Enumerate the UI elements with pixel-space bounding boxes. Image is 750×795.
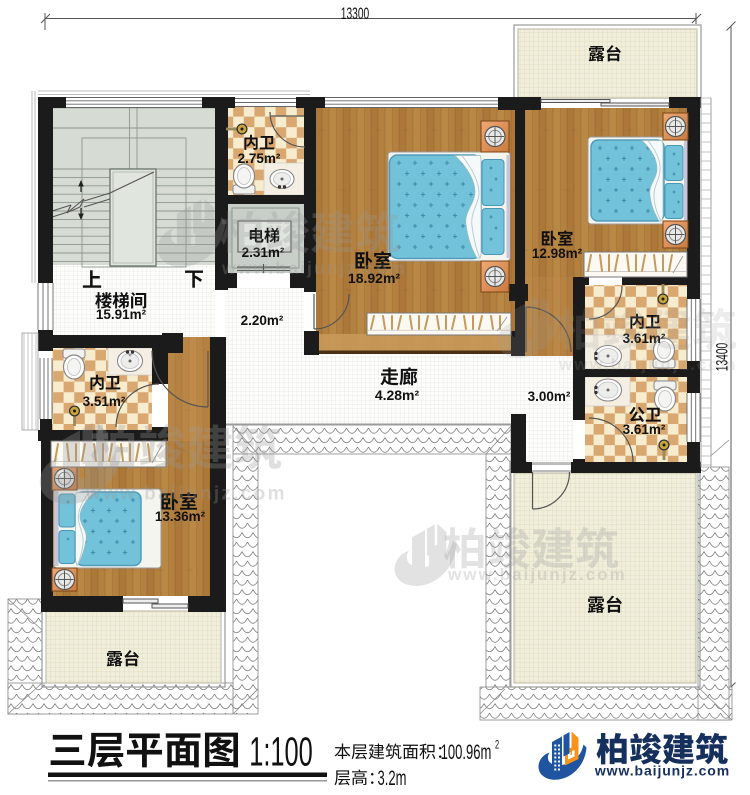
svg-text:13300: 13300 (341, 4, 370, 22)
svg-text:12.98m²: 12.98m² (532, 246, 583, 261)
svg-text:3.00m²: 3.00m² (528, 389, 571, 404)
svg-text:www.baijunjz.com: www.baijunjz.com (447, 565, 627, 584)
svg-text:1:100: 1:100 (249, 730, 313, 776)
svg-text:www.baijunjz.com: www.baijunjz.com (594, 763, 730, 779)
svg-text:100.96m: 100.96m (441, 740, 492, 764)
svg-text:13.36m²: 13.36m² (155, 509, 206, 524)
svg-text:4.28m²: 4.28m² (375, 387, 420, 403)
svg-text:2.20m²: 2.20m² (241, 313, 284, 328)
svg-text:www.baijunjz.com: www.baijunjz.com (558, 355, 738, 374)
svg-text:www.baijunjz.com: www.baijunjz.com (85, 484, 287, 505)
svg-text:2: 2 (495, 739, 499, 752)
svg-text:15.91m²: 15.91m² (96, 307, 147, 322)
svg-text:www.baijunjz.com: www.baijunjz.com (221, 258, 407, 278)
svg-text:3.2m: 3.2m (378, 766, 407, 790)
svg-text:3.51m²: 3.51m² (83, 394, 126, 409)
svg-text:3.61m²: 3.61m² (623, 422, 666, 437)
svg-text:2.75m²: 2.75m² (238, 151, 281, 166)
